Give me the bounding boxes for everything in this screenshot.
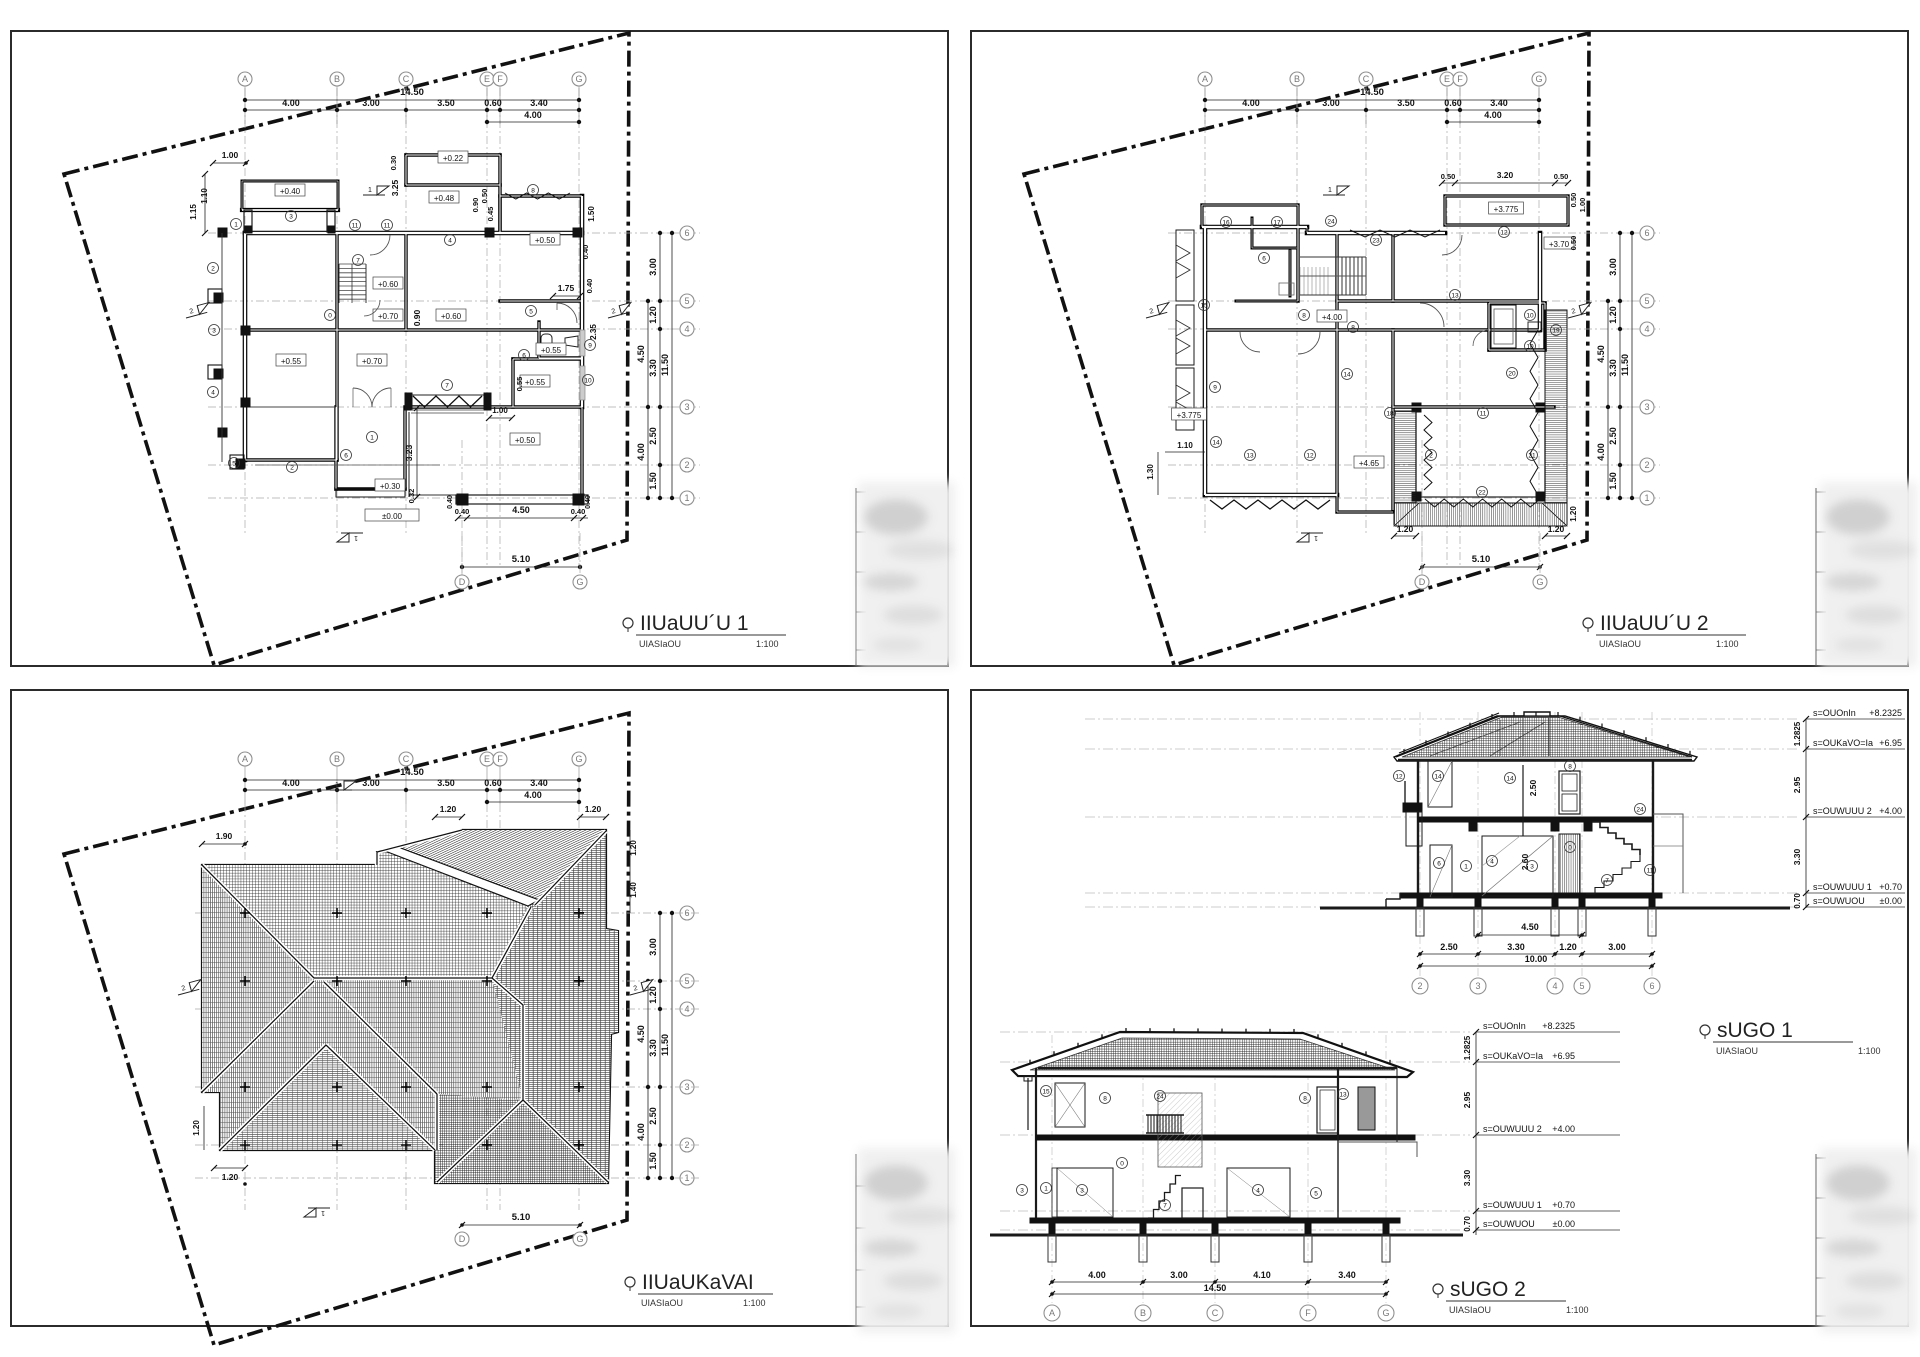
svg-text:8: 8	[1303, 1096, 1307, 1103]
svg-text:13: 13	[1451, 293, 1459, 300]
svg-text:F: F	[497, 754, 503, 764]
svg-text:1.50: 1.50	[648, 472, 658, 490]
svg-text:11.50: 11.50	[1620, 354, 1630, 376]
svg-text:3.40: 3.40	[530, 778, 548, 788]
svg-text:s=OUWUUU 1: s=OUWUUU 1	[1813, 882, 1872, 892]
svg-text:A: A	[242, 754, 248, 764]
svg-text:10: 10	[1526, 344, 1534, 351]
svg-text:6: 6	[1649, 981, 1654, 991]
svg-text:2: 2	[684, 460, 689, 470]
svg-text:1:100: 1:100	[756, 639, 779, 649]
svg-text:4.50: 4.50	[636, 1025, 646, 1043]
svg-text:3.40: 3.40	[530, 98, 548, 108]
svg-text:3.23: 3.23	[404, 444, 414, 461]
svg-text:G: G	[1536, 577, 1543, 587]
svg-text:3: 3	[1644, 402, 1649, 412]
svg-text:+0.60: +0.60	[378, 280, 399, 289]
svg-text:14: 14	[1212, 440, 1220, 447]
svg-text:E: E	[1444, 74, 1450, 84]
svg-text:±0.00: ±0.00	[1880, 896, 1902, 906]
svg-text:1.90: 1.90	[216, 831, 233, 841]
svg-text:E: E	[484, 754, 490, 764]
svg-text:+3.775: +3.775	[1494, 205, 1519, 214]
svg-text:+3.70: +3.70	[1549, 240, 1570, 249]
svg-text:E: E	[484, 74, 490, 84]
svg-text:+4.00: +4.00	[1552, 1124, 1575, 1134]
svg-text:1.10: 1.10	[200, 188, 209, 204]
svg-text:4.00: 4.00	[282, 778, 300, 788]
svg-text:A: A	[1202, 74, 1208, 84]
svg-text:s=OUWUUU 1: s=OUWUUU 1	[1483, 1200, 1542, 1210]
svg-text:3.00: 3.00	[362, 778, 380, 788]
svg-text:±0.00: ±0.00	[382, 512, 403, 521]
svg-text:1.00: 1.00	[492, 406, 508, 415]
svg-text:7: 7	[445, 383, 449, 390]
svg-text:1.20: 1.20	[222, 1172, 239, 1182]
svg-text:1.50: 1.50	[587, 206, 596, 222]
svg-text:1.2825: 1.2825	[1793, 721, 1802, 746]
svg-text:s=OUKaVO=Ia: s=OUKaVO=Ia	[1813, 738, 1873, 748]
svg-text:+0.40: +0.40	[280, 187, 301, 196]
svg-text:0.45: 0.45	[486, 207, 495, 222]
svg-text:1.10: 1.10	[1177, 441, 1193, 450]
svg-text:B: B	[334, 74, 340, 84]
svg-text:10: 10	[584, 378, 592, 385]
svg-text:1.20: 1.20	[1608, 306, 1618, 324]
svg-text:19: 19	[1552, 328, 1560, 335]
svg-text:0.50: 0.50	[1569, 193, 1578, 208]
svg-text:1.00: 1.00	[1578, 198, 1587, 213]
svg-text:1.20: 1.20	[648, 306, 658, 324]
svg-text:IIUaUKaVAI: IIUaUKaVAI	[642, 1271, 754, 1294]
svg-text:4.00: 4.00	[1484, 110, 1502, 120]
svg-text:6: 6	[684, 228, 689, 238]
svg-text:2: 2	[1644, 460, 1649, 470]
svg-text:3: 3	[684, 402, 689, 412]
svg-text:3.00: 3.00	[648, 938, 658, 956]
svg-text:0.40: 0.40	[571, 507, 586, 516]
svg-text:4: 4	[684, 324, 689, 334]
svg-text:B: B	[1140, 1308, 1146, 1318]
svg-text:+0.60: +0.60	[441, 312, 462, 321]
svg-text:5.10: 5.10	[512, 1212, 531, 1223]
svg-text:1.20: 1.20	[629, 840, 638, 856]
svg-text:13: 13	[1246, 453, 1254, 460]
svg-text:7: 7	[1163, 1203, 1167, 1210]
svg-text:17: 17	[1273, 220, 1281, 227]
svg-text:5: 5	[1314, 1191, 1318, 1198]
svg-text:2.50: 2.50	[1440, 942, 1458, 952]
svg-text:14: 14	[1343, 372, 1351, 379]
svg-text:2.95: 2.95	[1792, 776, 1802, 793]
svg-text:1.40: 1.40	[629, 882, 638, 898]
svg-text:1.20: 1.20	[648, 986, 658, 1004]
svg-text:4.00: 4.00	[636, 1123, 646, 1141]
svg-text:2: 2	[1417, 981, 1422, 991]
svg-text:8: 8	[1568, 764, 1572, 771]
svg-text:0.40: 0.40	[585, 279, 594, 294]
svg-text:1:100: 1:100	[1716, 639, 1739, 649]
svg-text:1.00: 1.00	[222, 150, 239, 160]
svg-text:IIUaUU´U 1: IIUaUU´U 1	[640, 612, 749, 635]
svg-text:1.20: 1.20	[1548, 524, 1565, 534]
svg-text:0.70: 0.70	[1463, 1216, 1472, 1232]
svg-text:0.30: 0.30	[389, 156, 398, 171]
svg-text:5.10: 5.10	[512, 554, 531, 565]
svg-text:3: 3	[212, 328, 216, 335]
svg-text:4.00: 4.00	[636, 443, 646, 461]
svg-text:5: 5	[1579, 981, 1584, 991]
svg-text:5: 5	[232, 461, 236, 468]
svg-text:0.60: 0.60	[484, 778, 502, 788]
svg-text:1.2825: 1.2825	[1463, 1035, 1472, 1060]
svg-text:24: 24	[1636, 807, 1644, 814]
svg-text:3.30: 3.30	[1792, 848, 1802, 865]
svg-text:8: 8	[1302, 313, 1306, 320]
svg-text:8: 8	[531, 188, 535, 195]
svg-text:+4.00: +4.00	[1322, 313, 1343, 322]
svg-text:+0.70: +0.70	[1879, 882, 1902, 892]
svg-text:3.30: 3.30	[1507, 942, 1525, 952]
svg-text:0.40: 0.40	[455, 507, 470, 516]
svg-text:4.50: 4.50	[636, 345, 646, 363]
svg-text:s=OUWUOU: s=OUWUOU	[1483, 1219, 1535, 1229]
svg-text:14.50: 14.50	[1360, 87, 1384, 98]
svg-text:1: 1	[1044, 1186, 1048, 1193]
svg-text:3.30: 3.30	[1608, 359, 1618, 377]
svg-text:4.50: 4.50	[1596, 345, 1606, 363]
svg-text:6: 6	[1644, 228, 1649, 238]
svg-text:22: 22	[1478, 490, 1486, 497]
svg-text:+0.22: +0.22	[443, 154, 464, 163]
svg-text:5: 5	[1644, 296, 1649, 306]
svg-text:4.00: 4.00	[524, 790, 542, 800]
svg-text:3: 3	[1475, 981, 1480, 991]
svg-text:C: C	[403, 74, 410, 84]
svg-text:2.50: 2.50	[648, 1107, 658, 1125]
svg-text:0.40: 0.40	[447, 495, 454, 509]
svg-text:1:100: 1:100	[1858, 1046, 1881, 1056]
svg-text:3.50: 3.50	[1397, 98, 1415, 108]
svg-text:C: C	[1363, 74, 1370, 84]
svg-text:1: 1	[321, 1209, 325, 1216]
svg-text:2: 2	[290, 465, 294, 472]
svg-text:1.20: 1.20	[585, 804, 602, 814]
svg-text:3.00: 3.00	[362, 98, 380, 108]
svg-text:0: 0	[1120, 1161, 1124, 1168]
svg-text:1: 1	[368, 187, 372, 194]
svg-text:14: 14	[1506, 776, 1514, 783]
svg-text:14.50: 14.50	[1204, 1283, 1227, 1293]
svg-text:4: 4	[211, 390, 215, 397]
svg-text:0.90: 0.90	[471, 198, 480, 213]
svg-text:1.20: 1.20	[1569, 506, 1578, 522]
svg-text:G: G	[576, 1234, 583, 1244]
svg-text:8: 8	[1351, 325, 1355, 332]
svg-text:1.20: 1.20	[192, 1120, 201, 1136]
svg-text:+0.30: +0.30	[380, 482, 401, 491]
svg-text:4.00: 4.00	[1088, 1270, 1106, 1280]
svg-text:11: 11	[384, 223, 391, 230]
svg-text:C: C	[403, 754, 410, 764]
svg-text:1: 1	[234, 222, 238, 229]
svg-text:3.40: 3.40	[1338, 1270, 1356, 1280]
svg-text:15: 15	[1042, 1089, 1050, 1096]
svg-text:12: 12	[1395, 774, 1403, 781]
svg-text:A: A	[242, 74, 248, 84]
svg-text:3.00: 3.00	[1322, 98, 1340, 108]
svg-text:+0.50: +0.50	[535, 236, 556, 245]
svg-text:3.20: 3.20	[1497, 170, 1514, 180]
svg-text:0.50: 0.50	[1441, 172, 1456, 181]
svg-text:1:100: 1:100	[743, 1298, 766, 1308]
svg-text:2: 2	[1429, 453, 1433, 460]
svg-text:11: 11	[1480, 411, 1487, 418]
svg-text:2.50: 2.50	[648, 427, 658, 445]
svg-text:9: 9	[1213, 385, 1217, 392]
svg-text:+8.2325: +8.2325	[1869, 708, 1902, 718]
svg-text:D: D	[1419, 577, 1426, 587]
svg-text:s=OUOnIn: s=OUOnIn	[1813, 708, 1856, 718]
svg-text:14.50: 14.50	[400, 87, 424, 98]
svg-text:16: 16	[1222, 220, 1230, 227]
svg-text:+6.95: +6.95	[1552, 1051, 1575, 1061]
svg-text:11.50: 11.50	[660, 1034, 670, 1056]
svg-text:D: D	[459, 577, 466, 587]
svg-text:23: 23	[1372, 238, 1380, 245]
svg-text:D: D	[459, 1234, 466, 1244]
svg-text:s=OUKaVO=Ia: s=OUKaVO=Ia	[1483, 1051, 1543, 1061]
svg-text:+8.2325: +8.2325	[1542, 1021, 1575, 1031]
svg-text:6: 6	[522, 353, 526, 360]
svg-text:1: 1	[370, 435, 374, 442]
svg-text:2.50: 2.50	[1608, 427, 1618, 445]
svg-text:0.90: 0.90	[412, 309, 422, 326]
svg-text:14: 14	[1434, 774, 1442, 781]
svg-text:UIASIaOU: UIASIaOU	[1449, 1305, 1491, 1315]
svg-text:4.50: 4.50	[512, 505, 530, 515]
svg-text:0.55: 0.55	[515, 377, 524, 392]
svg-text:24: 24	[1327, 219, 1335, 226]
svg-text:5.10: 5.10	[1472, 554, 1491, 565]
svg-text:3.30: 3.30	[648, 1039, 658, 1057]
svg-text:+0.55: +0.55	[541, 346, 562, 355]
svg-text:7: 7	[1605, 878, 1609, 885]
svg-text:21: 21	[1528, 453, 1536, 460]
svg-text:3.50: 3.50	[437, 778, 455, 788]
svg-text:1.15: 1.15	[189, 204, 198, 220]
svg-text:14.50: 14.50	[400, 767, 424, 778]
svg-text:s=OUWUUU 2: s=OUWUUU 2	[1483, 1124, 1542, 1134]
svg-text:G: G	[1535, 74, 1542, 84]
svg-text:+0.50: +0.50	[515, 436, 536, 445]
svg-text:B: B	[1294, 74, 1300, 84]
svg-text:+0.70: +0.70	[378, 312, 399, 321]
svg-text:7: 7	[356, 258, 360, 265]
svg-text:s=OUWUUU 2: s=OUWUUU 2	[1813, 806, 1872, 816]
svg-text:sUGO 1: sUGO 1	[1717, 1019, 1793, 1042]
svg-text:4: 4	[448, 238, 452, 245]
svg-text:4: 4	[1644, 324, 1649, 334]
svg-text:+6.95: +6.95	[1879, 738, 1902, 748]
svg-text:20: 20	[1508, 371, 1516, 378]
svg-text:11: 11	[1647, 868, 1654, 875]
svg-text:3.00: 3.00	[1608, 258, 1618, 276]
svg-text:3.00: 3.00	[648, 258, 658, 276]
svg-text:4.00: 4.00	[1242, 98, 1260, 108]
svg-text:s=OUOnIn: s=OUOnIn	[1483, 1021, 1526, 1031]
svg-text:3.00: 3.00	[1170, 1270, 1188, 1280]
svg-text:1: 1	[1314, 534, 1318, 541]
svg-text:UIASIaOU: UIASIaOU	[1716, 1046, 1758, 1056]
svg-text:+0.70: +0.70	[362, 357, 383, 366]
svg-text:3.30: 3.30	[648, 359, 658, 377]
svg-text:4.00: 4.00	[282, 98, 300, 108]
svg-text:4.00: 4.00	[524, 110, 542, 120]
svg-text:0.32: 0.32	[407, 489, 416, 504]
svg-text:G: G	[576, 577, 583, 587]
svg-text:F: F	[1305, 1308, 1311, 1318]
svg-text:1.50: 1.50	[1608, 472, 1618, 490]
svg-text:UIASIaOU: UIASIaOU	[639, 639, 681, 649]
svg-text:3.25: 3.25	[390, 179, 400, 196]
svg-text:0.50: 0.50	[1554, 172, 1569, 181]
svg-text:1: 1	[1464, 864, 1468, 871]
svg-text:18: 18	[1386, 411, 1394, 418]
svg-text:2.50: 2.50	[1528, 779, 1538, 796]
svg-text:G: G	[575, 754, 582, 764]
svg-text:+4.65: +4.65	[1359, 459, 1380, 468]
svg-text:3: 3	[289, 214, 293, 221]
svg-text:0: 0	[1568, 845, 1572, 852]
svg-text:3.30: 3.30	[1462, 1169, 1472, 1186]
svg-text:0.60: 0.60	[1444, 98, 1462, 108]
svg-text:0.50: 0.50	[480, 189, 489, 204]
svg-text:C: C	[1212, 1308, 1219, 1318]
svg-text:1: 1	[354, 534, 358, 541]
svg-text:3: 3	[1530, 864, 1534, 871]
svg-text:6: 6	[1262, 256, 1266, 263]
svg-text:0.40: 0.40	[581, 245, 590, 260]
svg-text:5: 5	[684, 296, 689, 306]
svg-text:+0.70: +0.70	[1552, 1200, 1575, 1210]
svg-text:0.70: 0.70	[1793, 893, 1802, 909]
svg-text:10.00: 10.00	[1525, 954, 1548, 964]
svg-text:5: 5	[529, 309, 533, 316]
svg-text:12: 12	[1306, 453, 1314, 460]
svg-text:6: 6	[1437, 861, 1441, 868]
svg-text:+0.55: +0.55	[281, 357, 302, 366]
svg-text:0.50: 0.50	[1569, 236, 1578, 251]
svg-text:2.95: 2.95	[1462, 1091, 1472, 1108]
svg-text:±0.00: ±0.00	[1553, 1219, 1575, 1229]
svg-text:4: 4	[1490, 859, 1494, 866]
svg-text:1.20: 1.20	[1397, 524, 1414, 534]
svg-text:1.20: 1.20	[1559, 942, 1577, 952]
svg-text:3.50: 3.50	[437, 98, 455, 108]
svg-text:0: 0	[328, 313, 332, 320]
svg-text:1: 1	[684, 493, 689, 503]
svg-text:3: 3	[1020, 1188, 1024, 1195]
svg-text:8: 8	[1103, 1096, 1107, 1103]
svg-text:B: B	[334, 754, 340, 764]
svg-text:G: G	[1382, 1308, 1389, 1318]
svg-text:4: 4	[1552, 981, 1557, 991]
svg-text:A: A	[1049, 1308, 1055, 1318]
svg-text:4: 4	[1256, 1188, 1260, 1195]
svg-text:12: 12	[1500, 230, 1508, 237]
svg-text:1: 1	[335, 782, 339, 789]
svg-text:1: 1	[1328, 187, 1332, 194]
svg-text:13: 13	[1339, 1092, 1347, 1099]
svg-text:2: 2	[211, 266, 215, 273]
svg-text:+3.775: +3.775	[1177, 411, 1202, 420]
svg-text:F: F	[497, 74, 503, 84]
svg-text:0.40: 0.40	[585, 495, 592, 509]
svg-text:15: 15	[1200, 303, 1208, 310]
svg-text:F: F	[1457, 74, 1463, 84]
svg-text:2.35: 2.35	[589, 324, 598, 340]
svg-text:1.50: 1.50	[648, 1152, 658, 1170]
svg-text:UIASIaOU: UIASIaOU	[1599, 639, 1641, 649]
svg-text:10: 10	[1526, 313, 1534, 320]
svg-text:UIASIaOU: UIASIaOU	[641, 1298, 683, 1308]
svg-text:+0.48: +0.48	[434, 194, 455, 203]
svg-text:3: 3	[1080, 1188, 1084, 1195]
svg-text:s=OUWUOU: s=OUWUOU	[1813, 896, 1865, 906]
svg-text:IIUaUU´U 2: IIUaUU´U 2	[1600, 612, 1709, 635]
svg-text:1:100: 1:100	[1566, 1305, 1589, 1315]
svg-text:6: 6	[344, 453, 348, 460]
svg-text:sUGO 2: sUGO 2	[1450, 1278, 1526, 1301]
svg-text:11: 11	[352, 223, 359, 230]
svg-text:0.60: 0.60	[484, 98, 502, 108]
svg-text:1.20: 1.20	[440, 804, 457, 814]
svg-text:3.40: 3.40	[1490, 98, 1508, 108]
svg-text:1.75: 1.75	[558, 283, 575, 293]
svg-text:3.00: 3.00	[1608, 942, 1626, 952]
svg-text:4.00: 4.00	[1596, 443, 1606, 461]
svg-text:+4.00: +4.00	[1879, 806, 1902, 816]
svg-text:9: 9	[588, 343, 592, 350]
svg-text:1: 1	[1644, 493, 1649, 503]
svg-text:+0.55: +0.55	[525, 378, 546, 387]
svg-text:1.30: 1.30	[1146, 464, 1155, 480]
svg-text:24: 24	[1156, 1094, 1164, 1101]
svg-text:4.10: 4.10	[1253, 1270, 1271, 1280]
svg-text:G: G	[575, 74, 582, 84]
svg-text:11.50: 11.50	[660, 354, 670, 376]
svg-text:4.50: 4.50	[1521, 922, 1539, 932]
